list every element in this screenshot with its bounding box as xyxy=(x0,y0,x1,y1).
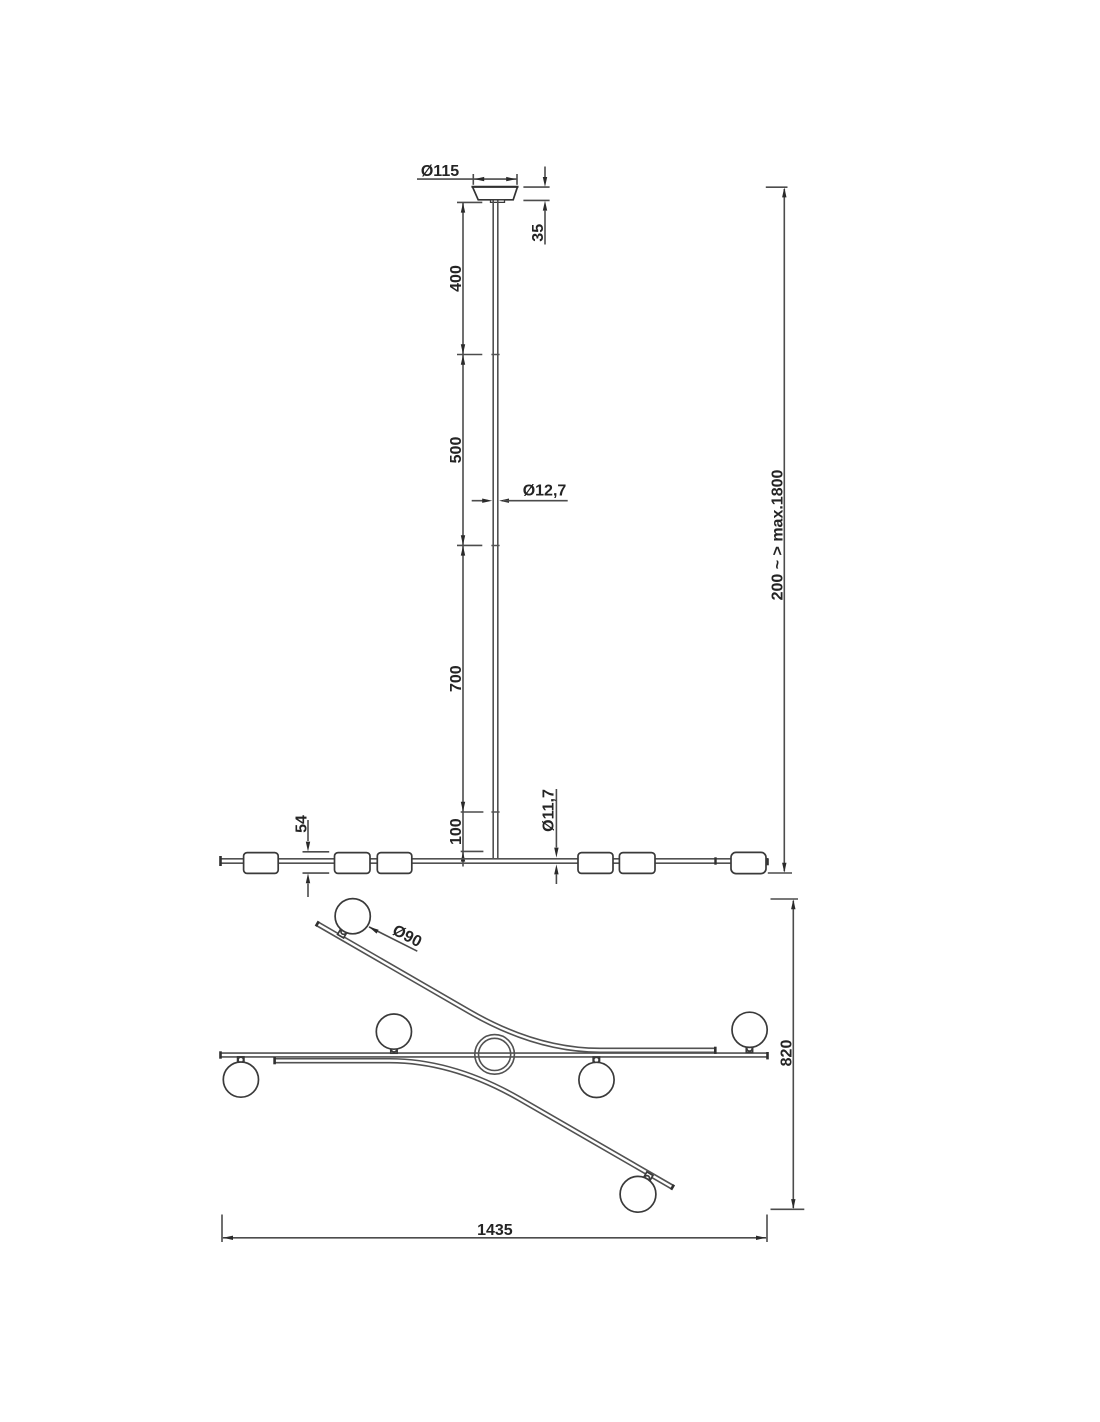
svg-text:100: 100 xyxy=(448,818,465,845)
svg-text:400: 400 xyxy=(448,265,465,292)
svg-text:Ø11,7: Ø11,7 xyxy=(541,789,558,832)
svg-text:700: 700 xyxy=(448,665,465,692)
svg-text:54: 54 xyxy=(293,815,310,833)
svg-text:1435: 1435 xyxy=(477,1222,513,1239)
svg-text:Ø115: Ø115 xyxy=(421,163,459,180)
svg-text:200 ~ > max.1800: 200 ~ > max.1800 xyxy=(769,470,786,601)
svg-text:Ø12,7: Ø12,7 xyxy=(523,483,567,500)
svg-text:35: 35 xyxy=(530,224,547,242)
svg-text:500: 500 xyxy=(448,437,465,464)
svg-text:820: 820 xyxy=(779,1040,796,1067)
